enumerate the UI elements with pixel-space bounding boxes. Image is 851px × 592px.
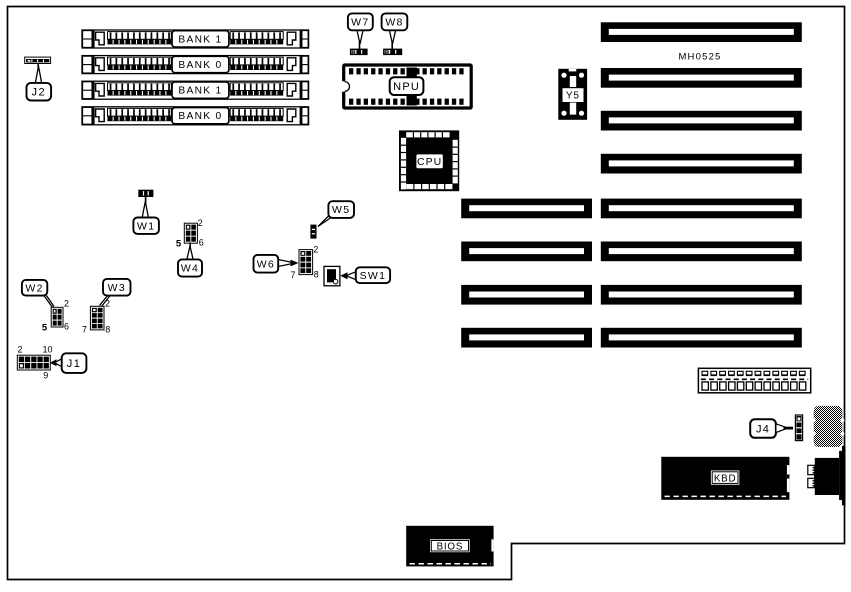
svg-text:W8: W8 (385, 16, 403, 28)
svg-text:BANK 0: BANK 0 (178, 111, 222, 122)
svg-text:W7: W7 (351, 16, 369, 28)
svg-text:KBD: KBD (714, 473, 737, 484)
svg-text:BIOS: BIOS (437, 541, 464, 552)
svg-text:5: 5 (42, 323, 48, 334)
svg-text:6: 6 (199, 238, 204, 248)
svg-text:5: 5 (176, 239, 182, 250)
svg-text:W6: W6 (257, 258, 275, 270)
svg-text:SW1: SW1 (360, 270, 387, 282)
svg-text:7: 7 (290, 270, 295, 280)
svg-text:9: 9 (43, 371, 48, 381)
svg-text:J4: J4 (756, 423, 770, 435)
svg-text:W3: W3 (108, 282, 126, 294)
svg-text:NPU: NPU (393, 81, 420, 93)
svg-text:8: 8 (105, 325, 110, 335)
svg-text:BANK 0: BANK 0 (178, 60, 222, 71)
svg-text:J2: J2 (31, 86, 46, 98)
svg-text:BANK 1: BANK 1 (178, 34, 222, 45)
svg-text:BANK 1: BANK 1 (178, 86, 222, 97)
svg-text:2: 2 (17, 345, 22, 355)
svg-text:2: 2 (64, 299, 69, 309)
svg-text:W1: W1 (137, 220, 155, 232)
svg-text:Y5: Y5 (566, 91, 580, 102)
svg-text:W2: W2 (25, 282, 43, 294)
svg-text:MH0525: MH0525 (678, 52, 721, 63)
svg-text:10: 10 (42, 345, 52, 355)
svg-text:CPU: CPU (417, 156, 442, 168)
svg-text:6: 6 (64, 322, 69, 332)
svg-text:J1: J1 (67, 358, 82, 370)
svg-text:W4: W4 (181, 263, 199, 275)
svg-text:2: 2 (313, 245, 318, 255)
svg-text:W5: W5 (332, 204, 350, 216)
svg-text:2: 2 (105, 299, 110, 309)
svg-text:7: 7 (82, 325, 87, 335)
svg-text:2: 2 (198, 218, 203, 228)
svg-text:8: 8 (314, 270, 319, 280)
